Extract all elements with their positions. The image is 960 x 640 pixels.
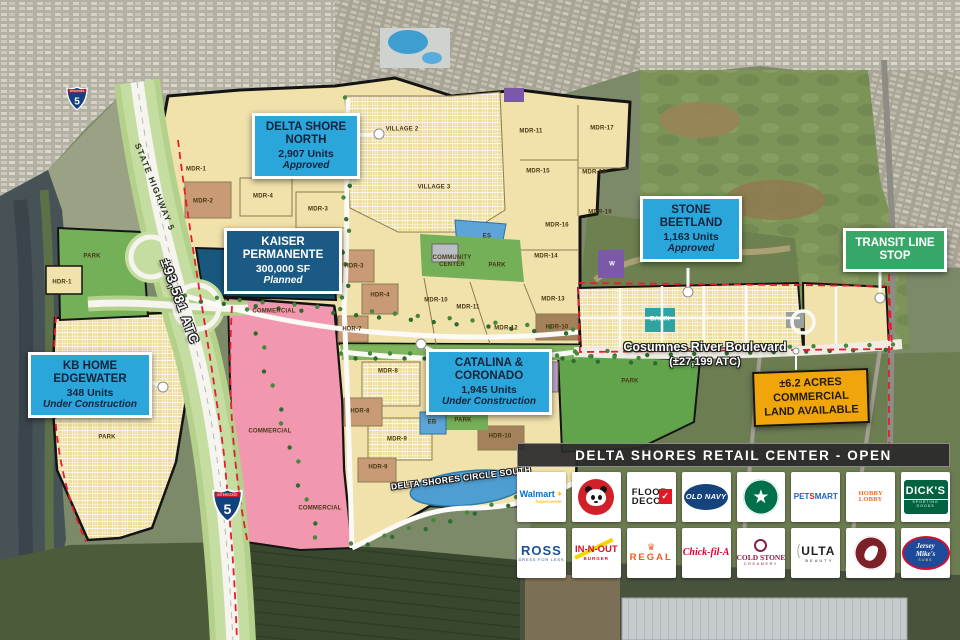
retail-logo-chick-fil-a: Chick-fil-A (682, 528, 731, 578)
callout-title: KB HOME EDGEWATER (35, 360, 145, 386)
callout-transit-line-stop: TRANSIT LINE STOP (843, 228, 947, 272)
callout-status: Approved (259, 160, 353, 171)
callout-units: 1,163 Units (647, 231, 735, 243)
callout-stone-beetland: STONE BEETLAND 1,163 Units Approved (640, 196, 742, 262)
callout-status: Under Construction (433, 396, 545, 407)
retail-logo-ross: ROSSDRESS FOR LESS (517, 528, 566, 578)
retail-logo-ulta: (ULTABEAUTY (791, 528, 840, 578)
svg-text:5: 5 (74, 96, 80, 107)
retail-logo-grid: Walmart✶SupercenterFLOORDECOR✓OLD NAVY★P… (517, 472, 950, 578)
retail-logo-jersey-mikes: JerseyMike'sSUBS (901, 528, 950, 578)
callout-kaiser-permanente: KAISER PERMANENTE 300,000 SF Planned (224, 228, 342, 294)
retail-logo-old-navy: OLD NAVY (682, 472, 731, 522)
retail-logo-cold-stone: COLD STONECREAMERY (737, 528, 786, 578)
retail-center-header: DELTA SHORES RETAIL CENTER - OPEN (517, 443, 950, 467)
retail-logo-in-n-out: IN-N-OUTBURGER (572, 528, 621, 578)
callout-title: STONE BEETLAND (647, 204, 735, 230)
callout-commercial-land-available: ±6.2 ACRES COMMERCIAL LAND AVAILABLE (752, 368, 870, 427)
delta-shores-site-map: PARKHDR-1MDR-1MDR-2MDR-4MDR-3VILLAGE 2VI… (0, 0, 960, 640)
callout-title: ±6.2 ACRES COMMERCIAL LAND AVAILABLE (758, 375, 863, 420)
callout-kb-home-edgewater: KB HOME EDGEWATER 348 Units Under Constr… (28, 352, 152, 418)
svg-text:5: 5 (224, 502, 232, 518)
retail-center-panel: DELTA SHORES RETAIL CENTER - OPEN Walmar… (517, 443, 950, 578)
callout-status: Approved (647, 243, 735, 254)
retail-logo-starbucks: ★ (737, 472, 786, 522)
interstate-5-shield-icon: INTERSTATE 5 (212, 488, 243, 523)
retail-logo-chipotle (846, 528, 895, 578)
svg-text:INTERSTATE: INTERSTATE (70, 90, 85, 93)
callout-units: 348 Units (35, 387, 145, 399)
callout-status: Under Construction (35, 399, 145, 410)
callout-title: DELTA SHORE NORTH (259, 121, 353, 147)
callout-title: CATALINA & CORONADO (433, 357, 545, 383)
callout-units: 1,945 Units (433, 384, 545, 396)
callout-status: Planned (231, 275, 335, 286)
callout-title: KAISER PERMANENTE (231, 236, 335, 262)
retail-logo-panda-express (572, 472, 621, 522)
callout-size: 300,000 SF (231, 263, 335, 275)
retail-logo-hobby-lobby: HOBBY LOBBY (846, 472, 895, 522)
retail-logo-petsmart: PETSMART (791, 472, 840, 522)
retail-logo-regal: ♛REGAL (627, 528, 676, 578)
retail-logo-walmart: Walmart✶Supercenter (517, 472, 566, 522)
retail-logo-dicks-sporting-goods: DICK'SSPORTING GOODS (901, 472, 950, 522)
svg-text:INTERSTATE: INTERSTATE (217, 493, 238, 497)
interstate-5-shield-icon: INTERSTATE 5 (66, 86, 88, 111)
callout-delta-shore-north: DELTA SHORE NORTH 2,907 Units Approved (252, 113, 360, 179)
retail-logo-floor-and-decor: FLOORDECOR✓ (627, 472, 676, 522)
callout-title: TRANSIT LINE STOP (850, 237, 940, 263)
callout-catalina-coronado: CATALINA & CORONADO 1,945 Units Under Co… (426, 349, 552, 415)
callout-units: 2,907 Units (259, 148, 353, 160)
